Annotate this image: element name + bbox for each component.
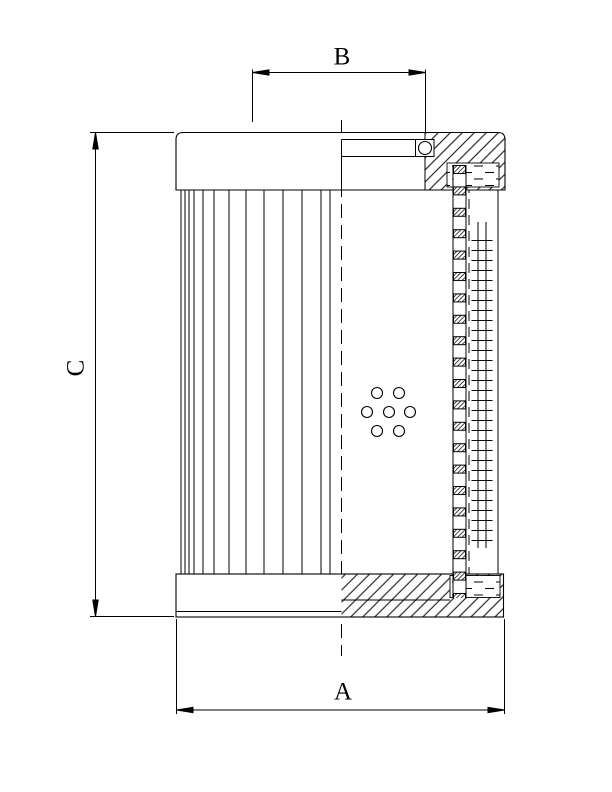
dimension-b-label: B [334,44,351,71]
mesh-ticks [472,236,493,542]
wire-mesh [472,222,493,548]
o-ring-seal [419,142,432,155]
pleated-filter-media [181,190,330,574]
filter-element-technical-drawing: B C A [0,0,612,792]
dimension-c-label: C [63,360,90,377]
dimension-a-label: A [334,679,352,706]
support-tube-segments [453,165,466,598]
support-tube [453,165,466,598]
drawing-canvas: B C A [0,0,612,792]
